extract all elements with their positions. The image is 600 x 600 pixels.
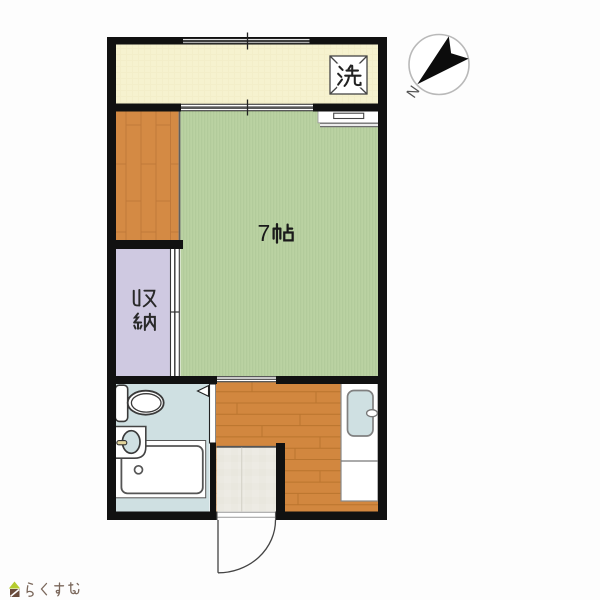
svg-text:7: 7 [258, 220, 271, 246]
